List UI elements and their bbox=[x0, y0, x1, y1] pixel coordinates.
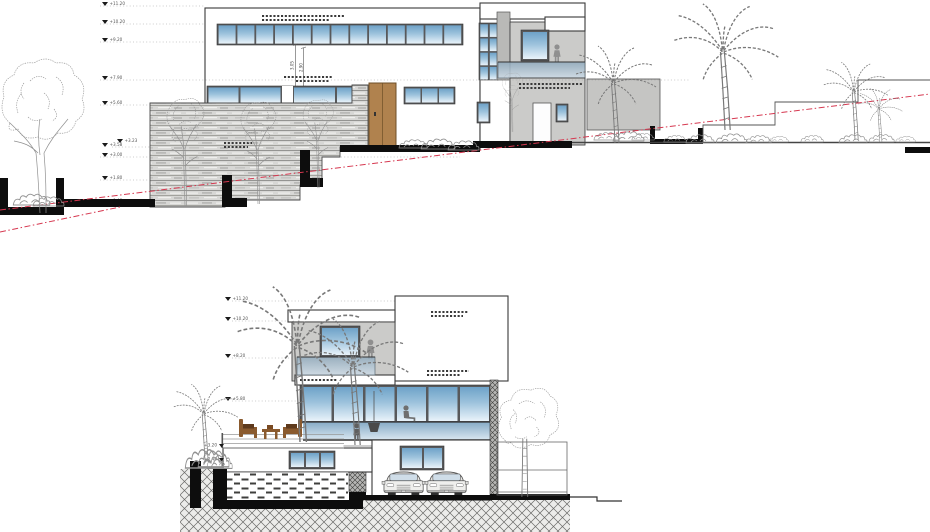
door-handle bbox=[374, 112, 376, 116]
svg-text:+11.20: +11.20 bbox=[233, 296, 249, 301]
balcony-fascia bbox=[295, 375, 395, 385]
palm-tree bbox=[674, 4, 778, 130]
svg-text:+7.90: +7.90 bbox=[110, 75, 123, 80]
basement-window bbox=[289, 451, 335, 469]
upper-white-volume bbox=[395, 296, 508, 381]
ribbon-window-band bbox=[217, 24, 463, 45]
elevation-marker: +10.20 bbox=[102, 19, 125, 24]
glass-balustrade-band bbox=[303, 422, 492, 440]
cut-wall-hatched bbox=[349, 472, 366, 492]
elevation-marker: +5.60 bbox=[102, 100, 123, 105]
garden-wall bbox=[587, 79, 660, 130]
balcony bbox=[498, 62, 585, 78]
svg-text:+3.58: +3.58 bbox=[110, 142, 123, 147]
svg-text:+8.20: +8.20 bbox=[233, 353, 246, 358]
elevation-marker: +3.00 bbox=[102, 152, 123, 157]
top-elevation: +11.20 +10.20 +9.20 +7.90 +5.60 +3.58 +3… bbox=[0, 1, 930, 232]
svg-text:2.90: 2.90 bbox=[299, 63, 304, 72]
elevation-section-drawing: +11.20 +10.20 +9.20 +7.90 +5.60 +3.58 +3… bbox=[0, 0, 930, 532]
svg-text:+3.20: +3.20 bbox=[204, 443, 217, 448]
svg-text:+1.80: +1.80 bbox=[110, 175, 123, 180]
elevation-marker: +11.20 bbox=[102, 1, 125, 6]
elevation-marker: +3.23 bbox=[117, 138, 138, 143]
living-room-glazing bbox=[300, 385, 491, 423]
earth-hatch bbox=[363, 500, 570, 532]
entry-door bbox=[369, 83, 396, 146]
earth-hatch bbox=[213, 509, 363, 532]
svg-text:+9.20: +9.20 bbox=[110, 37, 123, 42]
elevation-markers: +11.20 +10.20 +8.20 +5.80 bbox=[225, 296, 248, 401]
elevation-marker: +3.58 bbox=[102, 142, 123, 147]
corner-narrow-window bbox=[477, 102, 490, 123]
pool-floor bbox=[213, 500, 363, 509]
elevation-marker: +8.20 bbox=[225, 353, 246, 358]
svg-text:+10.20: +10.20 bbox=[233, 316, 249, 321]
palm-tree bbox=[858, 89, 902, 142]
parapet-step bbox=[545, 17, 585, 31]
elevation-markers: +11.20 +10.20 +9.20 +7.90 +5.60 +3.58 +3… bbox=[102, 1, 138, 203]
svg-text:+11.20: +11.20 bbox=[110, 1, 126, 6]
palm-tree bbox=[824, 62, 888, 140]
elevation-marker: +9.20 bbox=[102, 37, 123, 42]
garage-floor-slab bbox=[366, 495, 492, 501]
outdoor-furniture bbox=[239, 419, 302, 439]
garage-window bbox=[400, 446, 444, 470]
entry-side-window bbox=[404, 87, 455, 104]
garden-fence bbox=[497, 442, 567, 495]
garage bbox=[372, 440, 492, 497]
svg-text:+3.23: +3.23 bbox=[125, 138, 138, 143]
garden-tree bbox=[498, 388, 558, 497]
svg-text:3.05: 3.05 bbox=[290, 61, 295, 70]
architectural-drawing-sheet: +11.20 +10.20 +9.20 +7.90 +5.60 +3.58 +3… bbox=[0, 0, 930, 532]
svg-text:+10.20: +10.20 bbox=[110, 19, 126, 24]
svg-text:+5.60: +5.60 bbox=[110, 100, 123, 105]
elevation-marker: +11.20 bbox=[225, 296, 248, 301]
rear-upper-window bbox=[521, 30, 549, 61]
ground-floor-windows bbox=[207, 86, 353, 104]
svg-text:+3.00: +3.00 bbox=[110, 152, 123, 157]
roof-slab-band bbox=[288, 310, 395, 322]
right-yard bbox=[497, 388, 567, 497]
rear-narrow-window bbox=[556, 104, 568, 122]
elevation-marker: +7.90 bbox=[102, 75, 123, 80]
grade-step-line bbox=[570, 497, 622, 501]
elevation-marker: +1.80 bbox=[102, 175, 123, 180]
rear-door bbox=[533, 103, 551, 145]
stair-window-grid bbox=[479, 23, 498, 80]
deciduous-tree bbox=[2, 59, 84, 213]
svg-text:+5.80: +5.80 bbox=[233, 396, 246, 401]
bottom-section: +11.20 +10.20 +8.20 +5.80 bbox=[174, 287, 622, 532]
elevation-marker: +10.20 bbox=[225, 316, 248, 321]
swimming-pool bbox=[227, 472, 348, 501]
